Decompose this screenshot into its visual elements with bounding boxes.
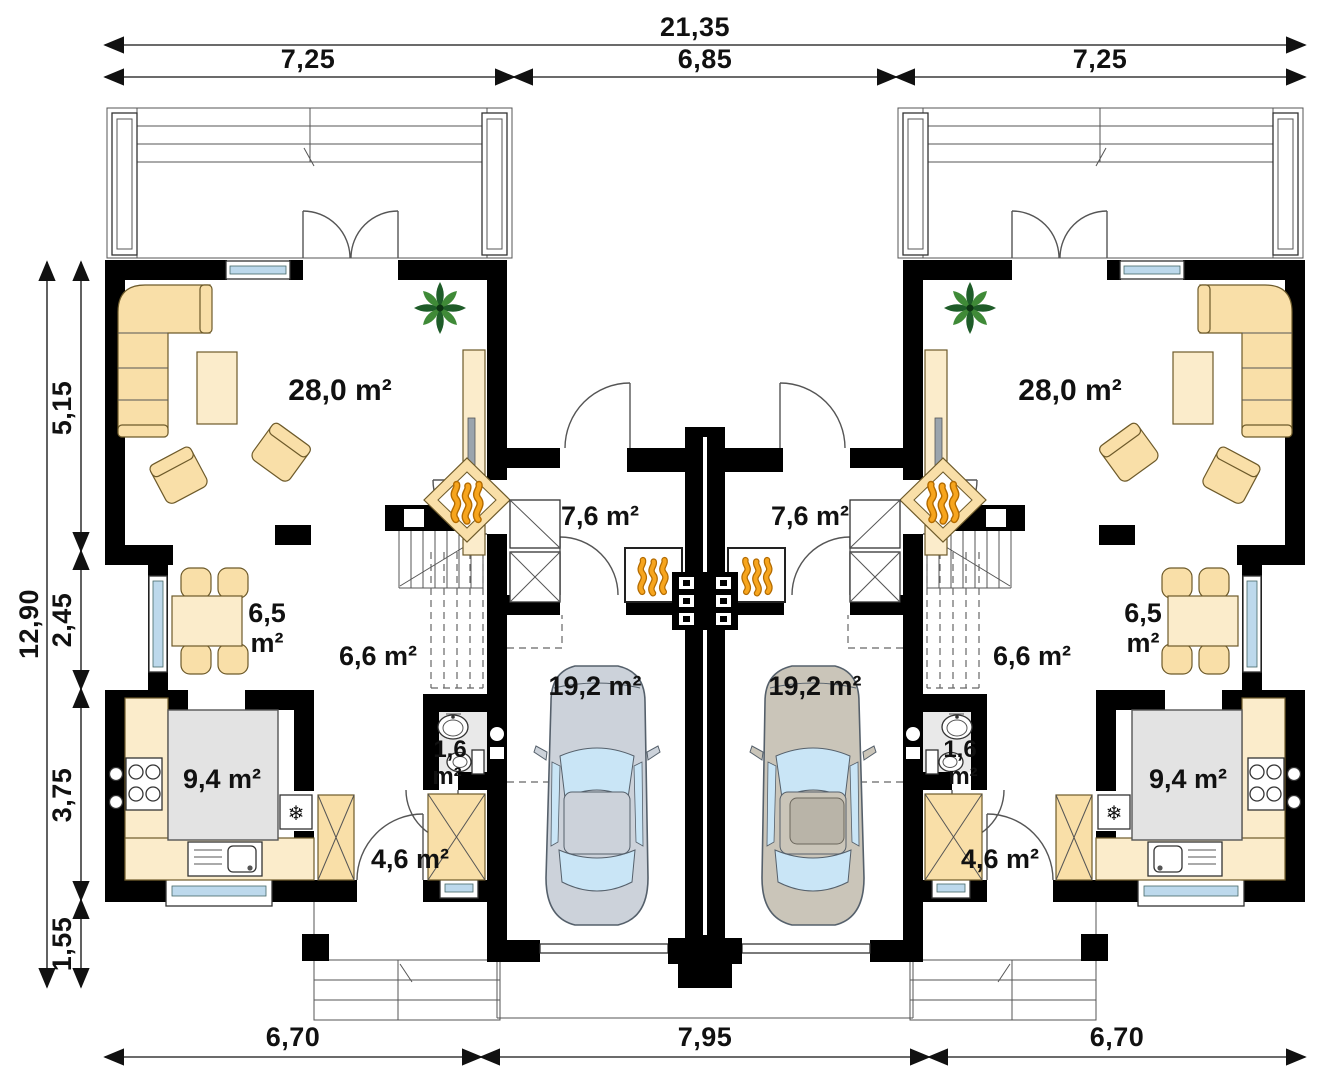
label-corridor-right: 4,6 m² (961, 844, 1039, 874)
label-hall-right: 6,6 m² (993, 641, 1071, 671)
label-wc-right: 1,6 (943, 736, 976, 763)
label-living-right: 28,0 m² (1018, 374, 1121, 407)
dim-side-4: 1,55 (47, 917, 77, 972)
dim-side-3: 3,75 (47, 768, 77, 823)
label-vestibule-left: 7,6 m² (561, 501, 639, 531)
label-kitchen-right: 9,4 m² (1149, 764, 1227, 794)
dimension-top: 21,35 7,25 6,85 7,25 (105, 12, 1305, 77)
dimension-bottom: 6,70 7,95 6,70 (105, 1022, 1305, 1057)
dim-bottom-right: 6,70 (1090, 1022, 1145, 1052)
car-sunroof (790, 798, 844, 844)
dim-total-width: 21,35 (660, 12, 730, 42)
car-left (534, 666, 660, 925)
label-vestibule-right: 7,6 m² (771, 501, 849, 531)
central-wall (627, 427, 783, 988)
label-wc-left: 1,6 (433, 736, 466, 763)
label-dining-right: 6,5 (1124, 598, 1162, 628)
label-living-left: 28,0 m² (288, 374, 391, 407)
fridge-snowflake-icon: ❄ (288, 803, 305, 825)
label-dining-left: 6,5 (248, 598, 286, 628)
dim-side-1: 5,15 (47, 381, 77, 436)
label-hall-left: 6,6 m² (339, 641, 417, 671)
label-garage-right: 19,2 m² (768, 671, 861, 701)
label-kitchen-left: 9,4 m² (183, 764, 261, 794)
label-corridor-left: 4,6 m² (371, 844, 449, 874)
dim-top-middle: 6,85 (678, 44, 733, 74)
dim-top-left: 7,25 (281, 44, 336, 74)
dim-side-2: 2,45 (47, 593, 77, 648)
label-garage-left: 19,2 m² (548, 671, 641, 701)
label-dining-unit-left: m² (251, 628, 284, 658)
dim-bottom-middle: 7,95 (678, 1022, 733, 1052)
label-dining-unit-right: m² (1127, 628, 1160, 658)
dimension-left: 12,90 5,15 2,45 3,75 1,55 (14, 262, 81, 987)
chimney (672, 572, 738, 630)
floor-plan-drawing: 21,35 7,25 6,85 7,25 12,90 5,15 2,45 3,7… (0, 0, 1326, 1080)
car-right (750, 666, 876, 925)
fridge-snowflake-icon: ❄ (1106, 803, 1123, 825)
floor-plan-page: 21,35 7,25 6,85 7,25 12,90 5,15 2,45 3,7… (0, 0, 1326, 1080)
label-wc-unit-left: m² (432, 763, 461, 790)
label-wc-unit-right: m² (948, 763, 977, 790)
dim-top-right: 7,25 (1073, 44, 1128, 74)
dim-total-depth: 12,90 (14, 589, 44, 659)
dim-bottom-left: 6,70 (266, 1022, 321, 1052)
